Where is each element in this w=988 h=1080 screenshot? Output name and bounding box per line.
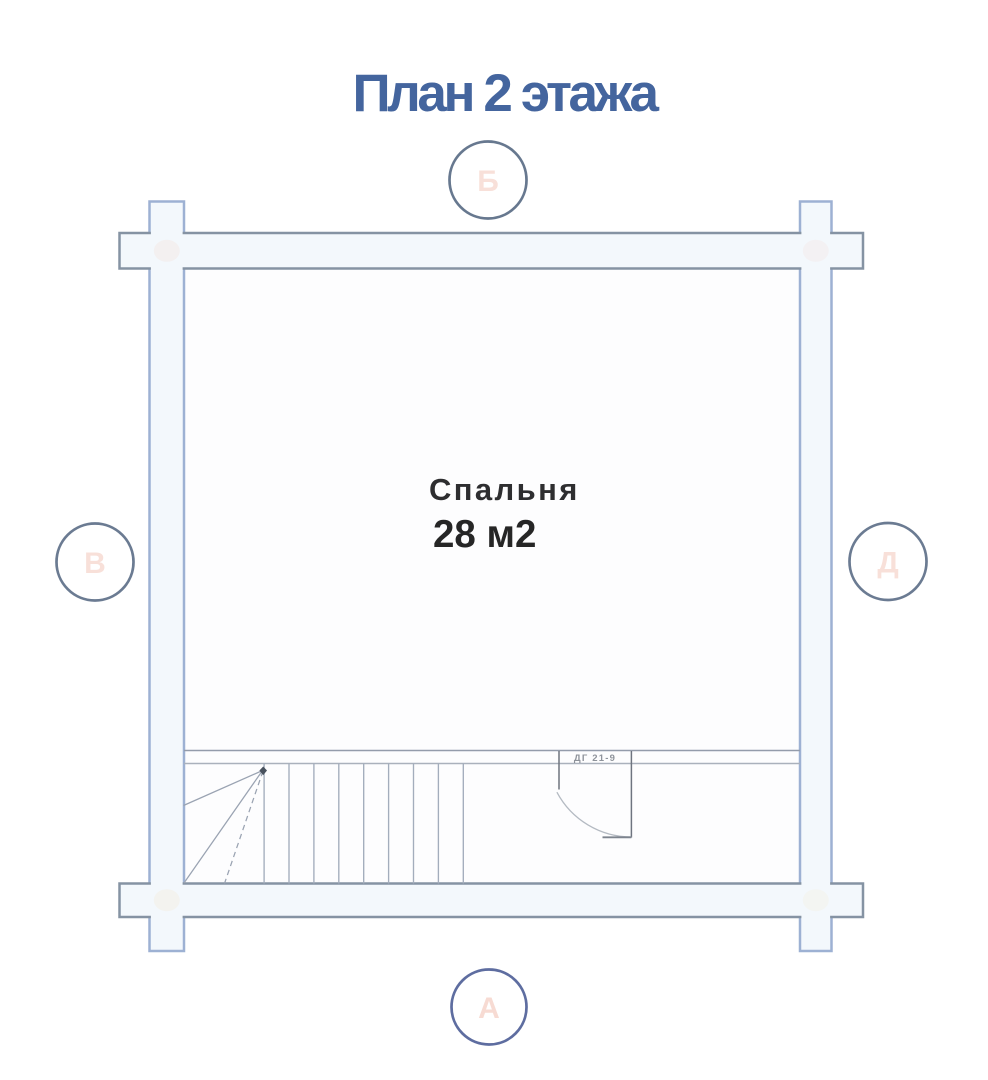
svg-text:28 м2: 28 м2 <box>433 513 536 556</box>
svg-text:Спальня: Спальня <box>429 472 580 507</box>
svg-text:ДГ 21-9: ДГ 21-9 <box>574 753 616 764</box>
svg-text:В: В <box>84 547 106 580</box>
svg-text:Д: Д <box>877 547 898 580</box>
svg-text:План 2 этажа: План 2 этажа <box>352 64 659 123</box>
svg-text:А: А <box>478 992 500 1025</box>
svg-text:Б: Б <box>477 165 499 198</box>
